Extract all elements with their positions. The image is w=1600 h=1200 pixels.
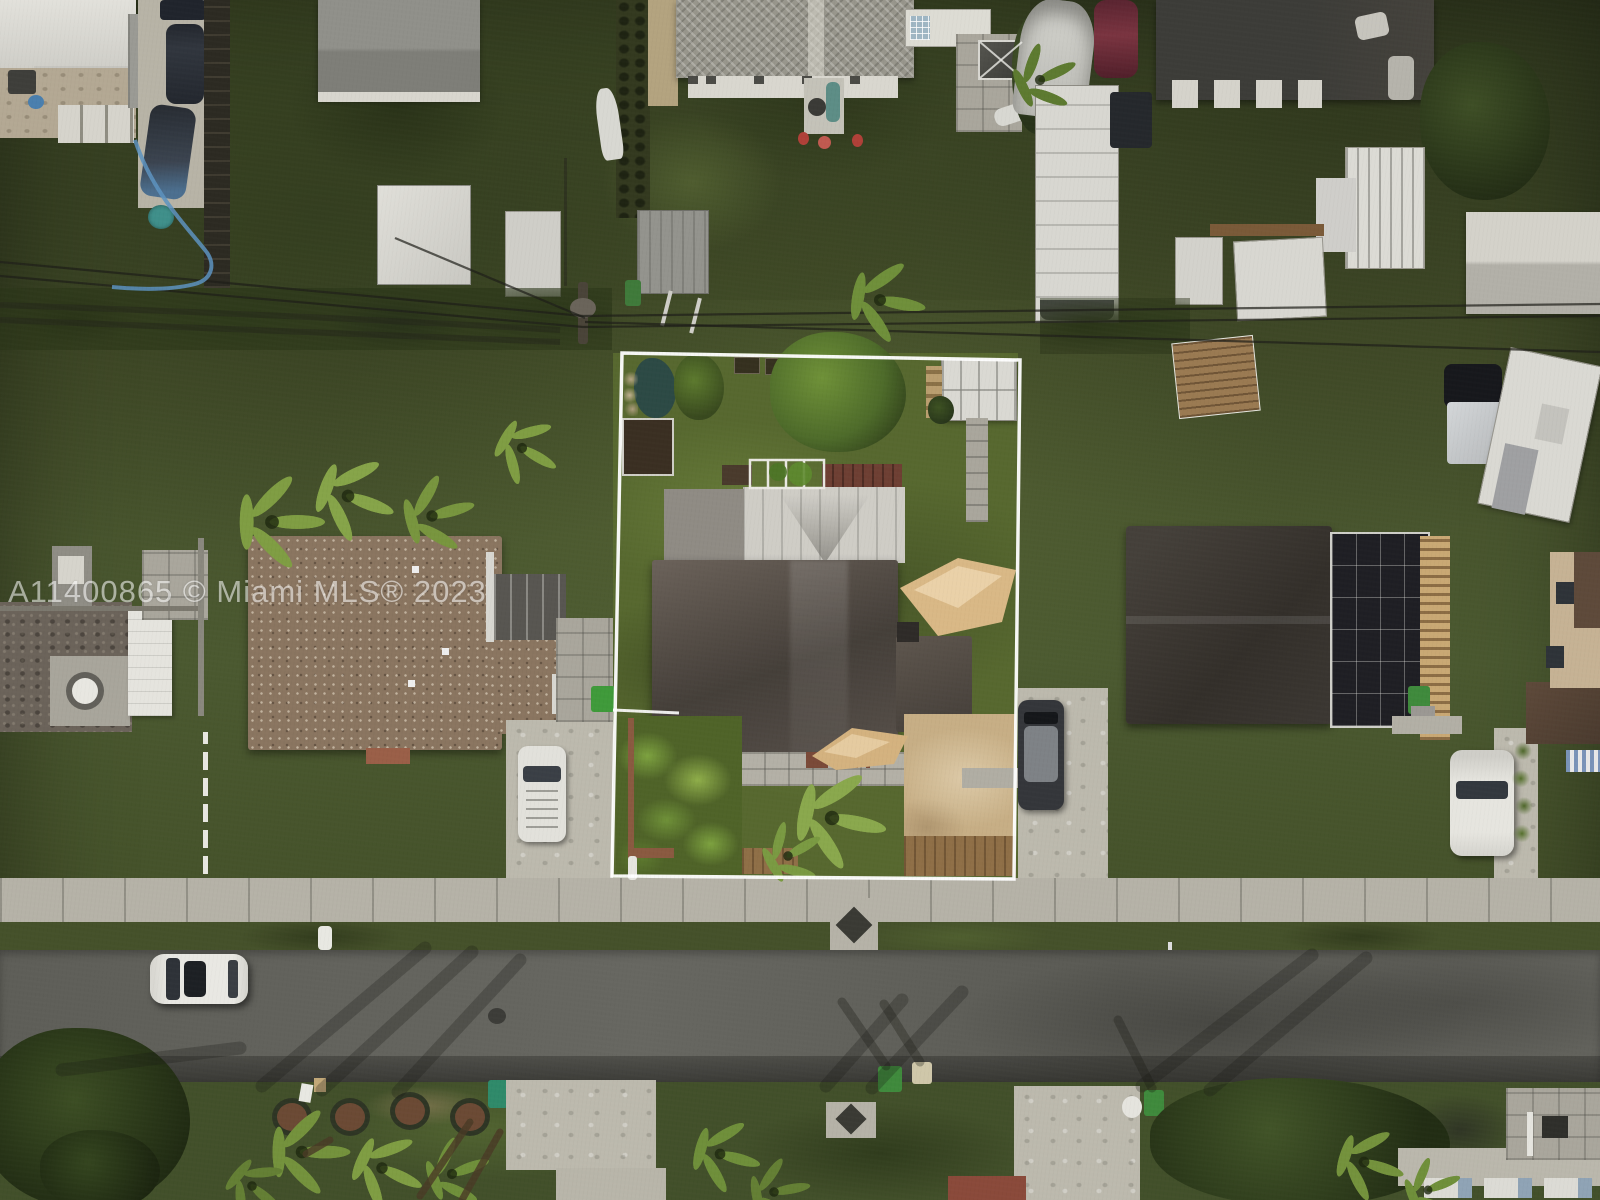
right-house-roof [1126,526,1332,724]
thin-pole [564,158,567,286]
green-bin-alley [625,280,641,306]
concrete-pads [58,105,134,143]
white-box-trailer [378,186,470,284]
white-pipe-sidewalk [628,856,637,880]
pond-rocks [624,370,638,416]
paver-walkway [966,418,988,522]
green-utility-box [591,686,615,712]
big-house-ridge [808,0,824,78]
wood-deck-left [742,848,798,874]
car-windshield [166,958,180,1000]
wood-slat-shed [1172,336,1259,418]
black-car [1110,92,1152,148]
white-shed-3 [1176,238,1222,304]
van-roof-rack [526,788,558,828]
mobile-home-roof [0,0,136,68]
gray-house-roof [318,0,480,100]
se-house-roof [1526,682,1600,744]
white-shed-small [506,212,560,296]
fence-line-v [198,538,204,716]
apron-center-ext [556,1168,666,1200]
red-paver-patch [948,1176,1026,1200]
ac-unit [8,70,36,94]
rv-trailer [1036,86,1118,322]
patio-table [72,678,98,704]
solar-panel-grid [910,16,930,40]
big-house-wall [688,76,898,98]
left-house-gutter [486,552,494,642]
kiddie-pool [148,205,174,229]
house-roof-sheen [790,560,848,754]
red-deck [822,464,902,488]
backyard-tree [770,332,906,452]
big-house-roof [676,0,914,78]
ridge-vent-2 [442,648,449,655]
metal-shed [638,211,708,293]
pond-plants [674,354,724,420]
mls-watermark: A11400865 © Miami MLS® 2023 [8,574,487,610]
sidewalk [0,878,1600,922]
dark-suv-roof [1024,726,1058,782]
hedge-column [616,0,650,218]
fire-hydrant [318,926,332,950]
grass-verge [0,922,1600,952]
white-awning [128,610,172,716]
red-chair-1 [798,132,809,145]
roof-ac-unit [897,622,919,642]
street-gutter [0,1056,1600,1082]
white-bucket [1122,1096,1142,1118]
dark-suv-windshield [1024,712,1058,724]
alley-hedge-right [1040,298,1190,354]
apron-right [1014,1086,1140,1200]
parked-car-dark-2 [166,24,204,104]
apron-center [506,1080,656,1170]
right-walk-path [1392,716,1462,734]
left-house-roof [248,536,502,750]
terracotta-edging-v [628,718,634,858]
teal-float [826,82,840,122]
planter-ring-1 [272,1098,312,1136]
blue-bucket [28,95,44,109]
trees-right-top [1420,42,1550,200]
grill-box [1542,1116,1568,1138]
raised-garden-bed [622,418,674,476]
red-chair-3 [852,134,863,147]
se-roof-top [1574,552,1600,628]
house-flat-gray [664,489,744,563]
dark-fence [204,0,230,288]
right-house-ridge [1126,616,1332,624]
ridge-vent-1 [412,566,419,573]
parked-car-dark-1 [160,0,206,20]
planter-box-1 [735,358,759,373]
wood-deck [904,836,1016,876]
pole-transformer [570,298,596,318]
walkway-to-house [962,768,1018,788]
terracotta-planters [806,752,870,768]
porch-furniture-row [1172,80,1322,108]
gable-house-topright [1466,212,1600,314]
white-shed-4 [1234,238,1326,320]
white-pipe-fence [203,732,208,874]
white-fence-bits-br [1424,1178,1600,1198]
striped-awning [1566,750,1600,772]
alley-hedge-left [0,288,612,350]
tan-square [314,1078,326,1092]
round-fan [808,98,826,116]
red-chair-2 [818,136,831,149]
maroon-car [1094,0,1138,78]
se-window-2 [1546,646,1564,668]
rusty-fence [1210,224,1324,236]
ridge-vent-3 [408,680,415,687]
gravel-path [648,0,678,106]
white-mobile-shed [1346,148,1424,268]
beige-bin [912,1062,932,1084]
white-suv [1450,750,1514,856]
planter-ring-3 [390,1092,430,1130]
teal-bin-swale [488,1080,508,1108]
ladder [660,290,702,333]
roof-white-patch-2 [1388,56,1414,100]
aerial-photo: A11400865 © Miami MLS® 2023 [0,0,1600,1200]
manhole [488,1008,506,1024]
dark-planter-strip [722,465,752,485]
car-sunroof [184,961,206,997]
planter-ring-4 [450,1098,490,1136]
green-bin-pair [878,1066,902,1092]
white-suv-windshield [1456,781,1508,799]
white-pipe-br [1527,1112,1533,1156]
hedge-dots [1512,740,1534,850]
planter-ring-2 [330,1098,370,1136]
bush-by-shed [928,396,954,424]
van-windshield [523,766,561,782]
red-paver-path [366,748,410,764]
gray-house-fascia [318,92,480,102]
car-rear-glass [228,960,238,998]
